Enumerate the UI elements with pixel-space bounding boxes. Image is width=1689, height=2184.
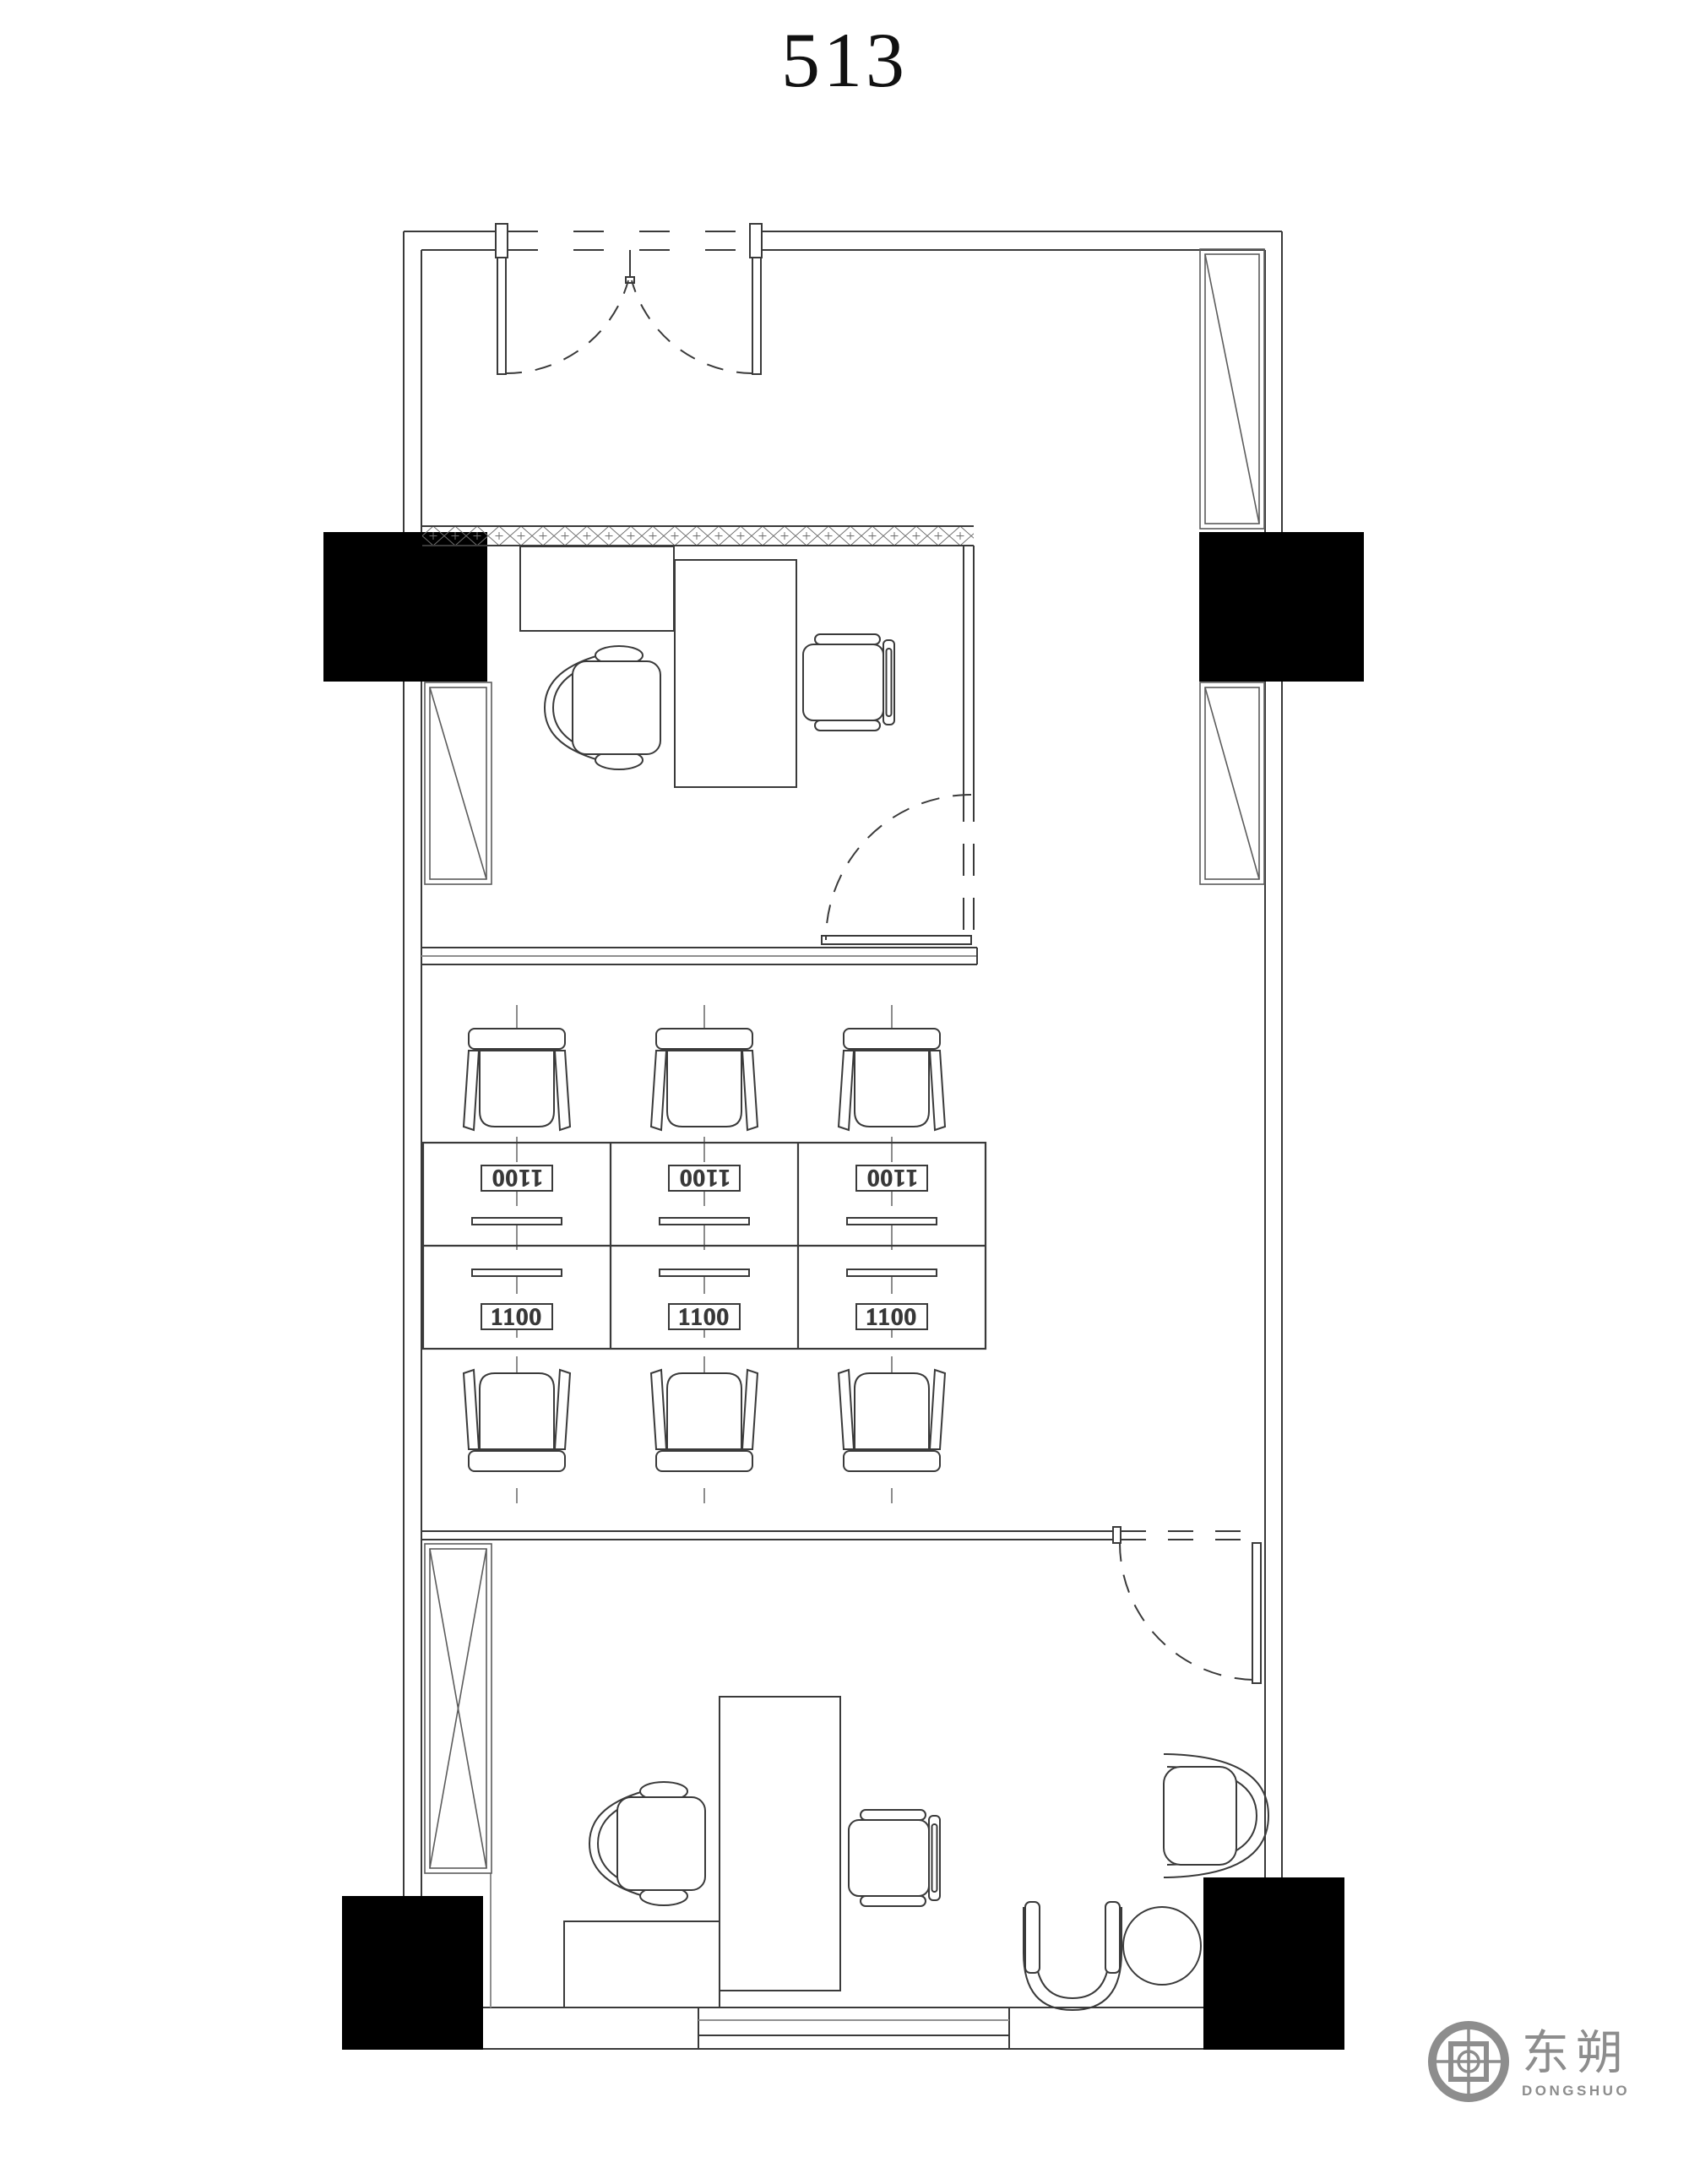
upper-office-partition-right <box>964 546 974 933</box>
bottom-wall-window <box>698 2007 1009 2049</box>
guest-chair-lower <box>849 1810 940 1906</box>
desk-label-6: 1100 <box>866 1304 918 1329</box>
window-right-middle <box>1200 682 1264 884</box>
side-table-round <box>1123 1907 1201 1985</box>
upper-office-partition-bottom <box>421 948 977 964</box>
lower-office-partition-top <box>421 1527 1252 1543</box>
desk-main <box>720 1697 840 1991</box>
door-swing-arc <box>826 795 971 940</box>
entrance-double-door <box>496 224 762 374</box>
door-leaf <box>822 936 971 944</box>
outer-walls <box>404 231 1282 2049</box>
logo-name-english: DONGSHUO <box>1522 2083 1630 2100</box>
ws-chair-top-2 <box>651 1029 758 1130</box>
lower-office <box>421 1527 1268 2010</box>
door-swing-arc-right <box>632 280 753 373</box>
ws-chair-bottom-1 <box>464 1370 570 1471</box>
door-swing-arc <box>1120 1543 1257 1680</box>
glass-partition-hatched <box>422 526 974 546</box>
open-office-workstations: 1100 1100 1100 1100 1100 1100 <box>423 1005 986 1503</box>
column-top-left <box>323 532 487 682</box>
upper-office-door <box>822 795 971 944</box>
window-right-top <box>1200 249 1264 529</box>
floor-plan-page: 513 <box>0 0 1689 2184</box>
floor-plan-drawing: 1100 1100 1100 1100 1100 1100 <box>0 0 1689 2184</box>
door-leaf <box>1252 1543 1261 1683</box>
column-bottom-right <box>1203 1877 1344 2050</box>
door-jamb-right <box>750 224 762 258</box>
ws-chair-top-3 <box>839 1029 945 1130</box>
ws-chair-bottom-2 <box>651 1370 758 1471</box>
window-left-lower <box>425 1544 491 1873</box>
door-jamb-left <box>496 224 508 258</box>
tub-chair <box>1024 1902 1121 2010</box>
upper-office <box>421 526 977 964</box>
brand-logo: 东朔 DONGSHUO <box>1427 2020 1630 2103</box>
ws-chair-top-1 <box>464 1029 570 1130</box>
desk-label-2: 1100 <box>679 1165 730 1191</box>
ws-chair-bottom-3 <box>839 1370 945 1471</box>
lower-office-door <box>1120 1543 1261 1683</box>
crosshair-target-icon <box>1427 2020 1510 2103</box>
executive-chair-lower <box>589 1782 705 1905</box>
door-swing-arc-left <box>505 280 628 373</box>
lounge-chair <box>1164 1754 1268 1877</box>
desk-label-1: 1100 <box>491 1165 543 1191</box>
door-leaf-left <box>497 258 506 374</box>
door-leaf-right <box>752 258 761 374</box>
executive-chair-upper <box>545 646 660 769</box>
column-bottom-left <box>342 1896 483 2050</box>
desk-return <box>564 1921 720 2007</box>
logo-name-chinese: 东朔 <box>1522 2029 1630 2078</box>
column-top-right <box>1199 532 1364 682</box>
desk-main <box>675 560 796 787</box>
desk-label-3: 1100 <box>866 1165 918 1191</box>
desk-label-4: 1100 <box>491 1304 543 1329</box>
window-left-upper <box>425 682 491 884</box>
guest-chair-upper <box>803 634 894 731</box>
desk-return <box>520 546 674 631</box>
desk-label-5: 1100 <box>679 1304 730 1329</box>
